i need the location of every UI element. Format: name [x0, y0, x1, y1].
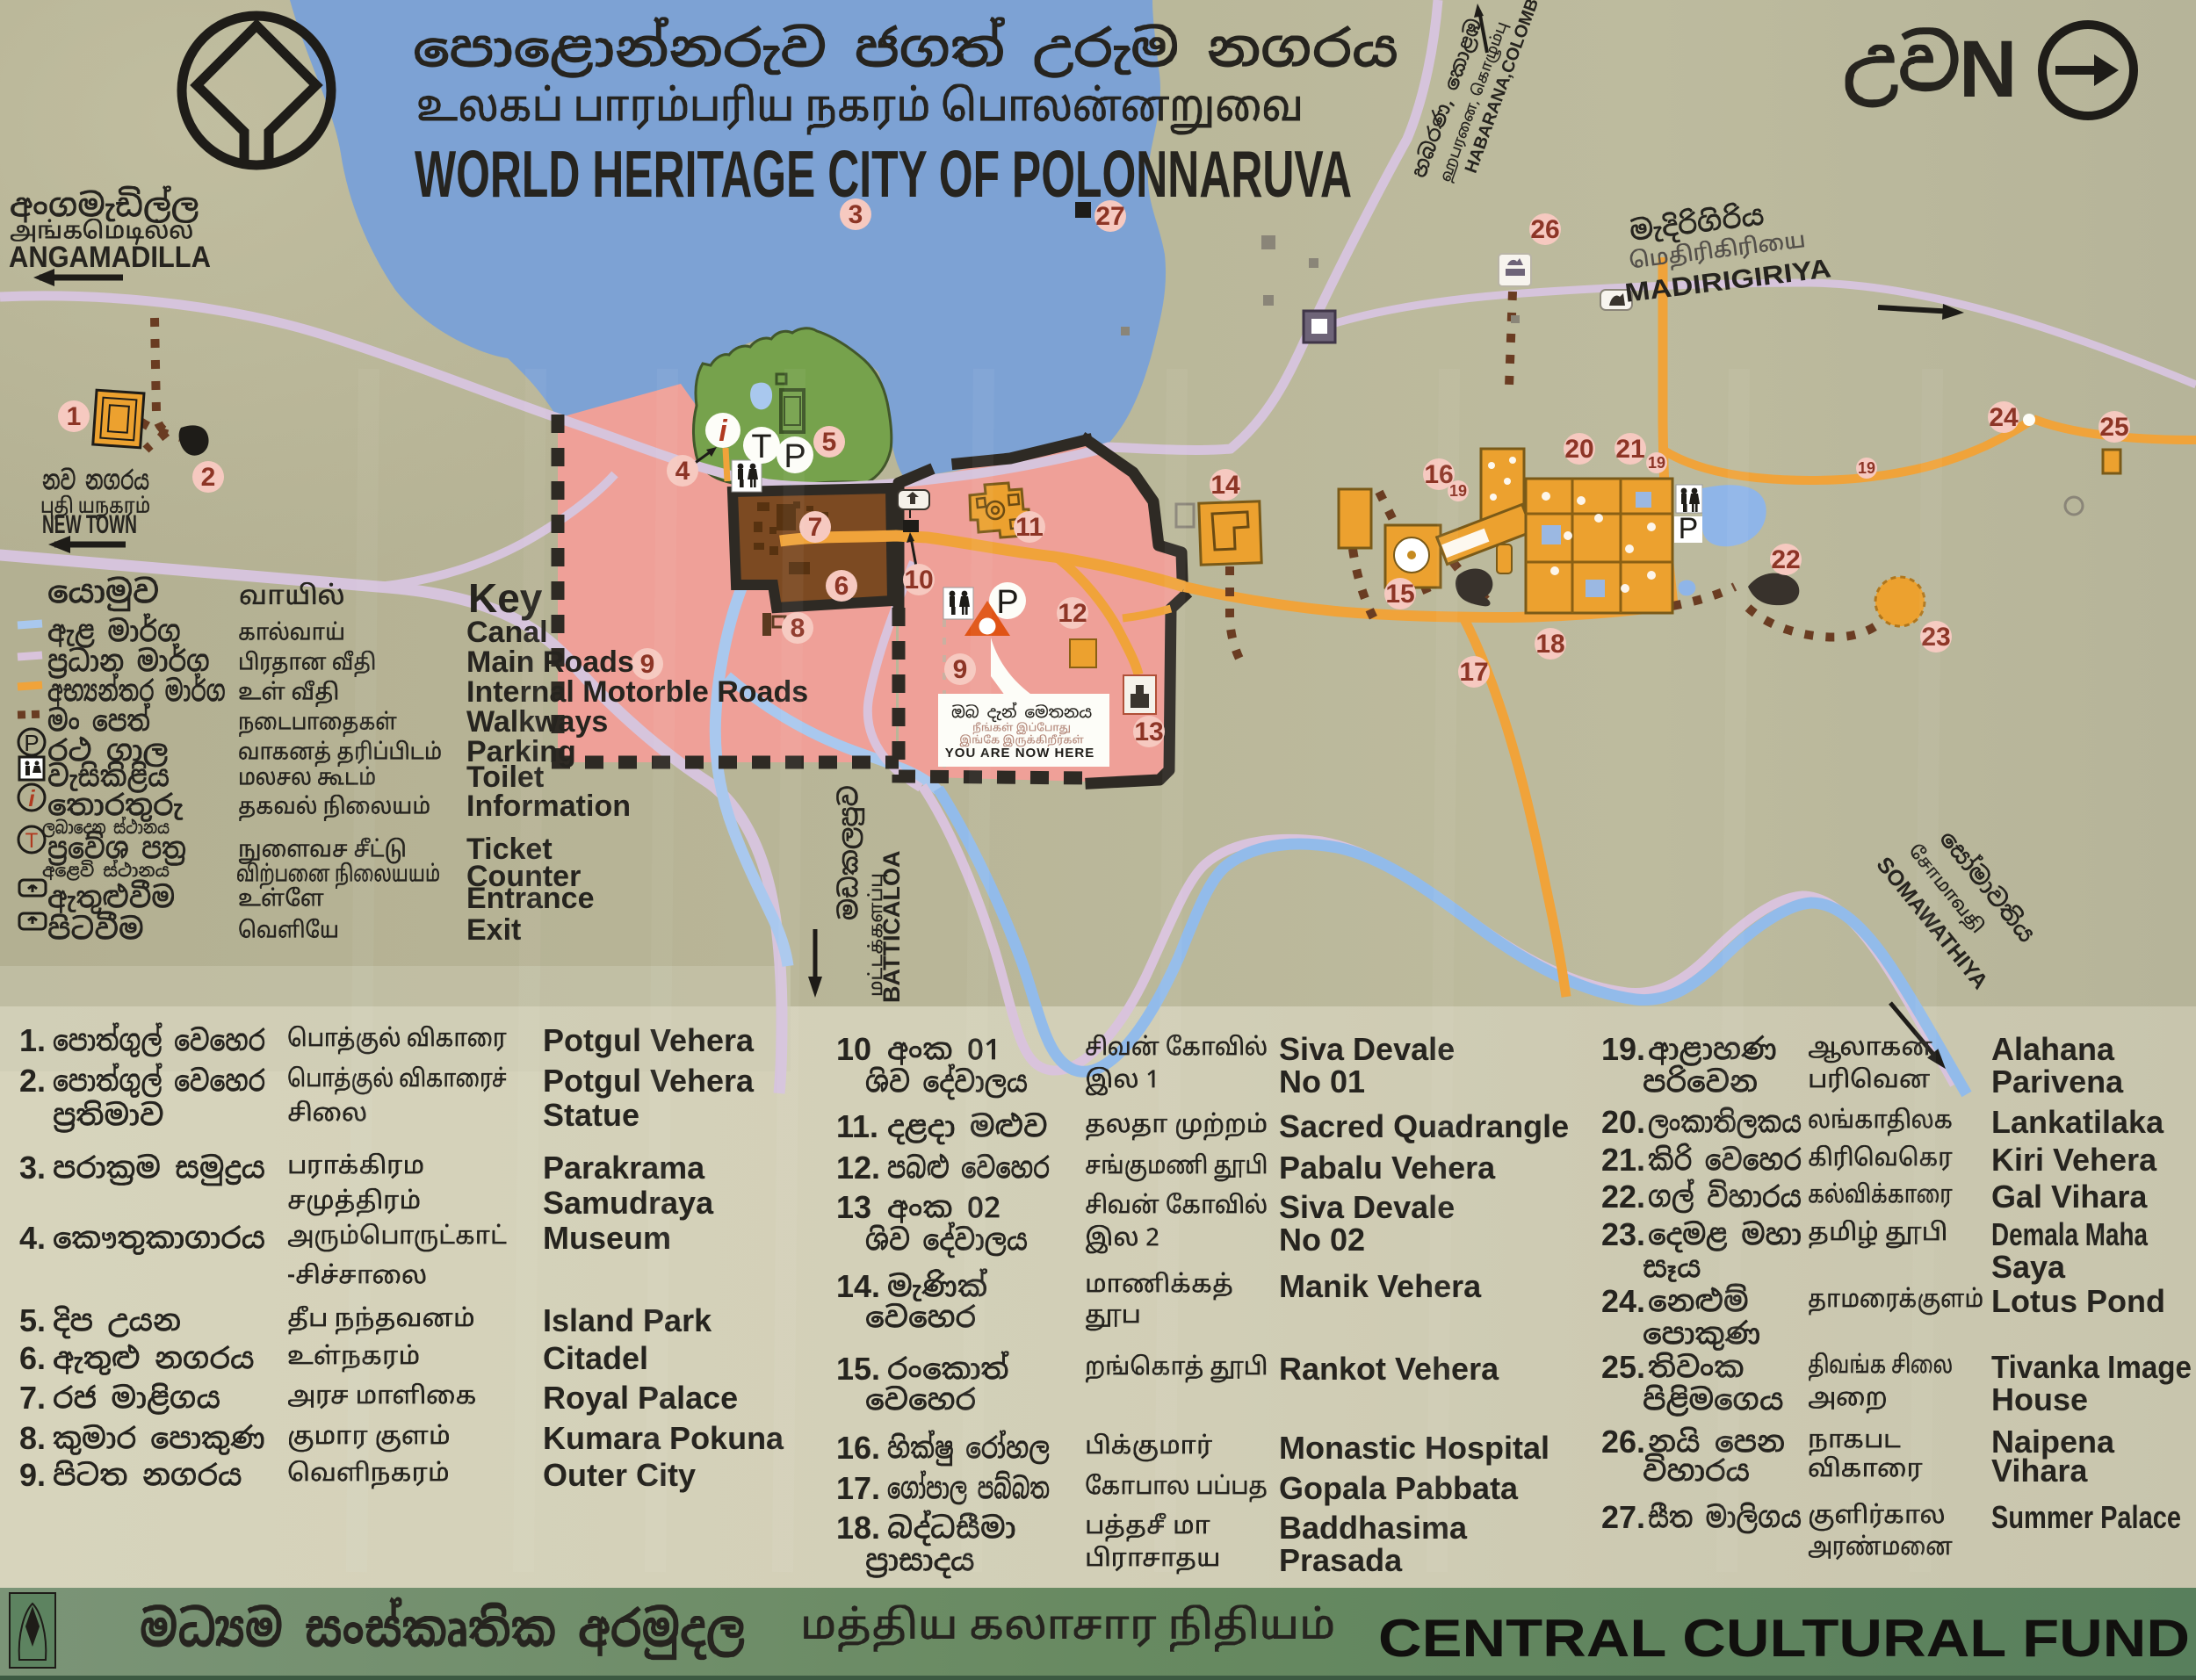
svg-text:i: i — [28, 785, 35, 811]
svg-text:Rankot Vehera: Rankot Vehera — [1279, 1351, 1499, 1387]
svg-text:4.: 4. — [19, 1220, 46, 1256]
svg-text:Potgul Vehera: Potgul Vehera — [543, 1022, 755, 1058]
svg-text:22: 22 — [1771, 545, 1800, 574]
svg-text:7.: 7. — [19, 1380, 46, 1416]
svg-text:Main Roads: Main Roads — [466, 645, 634, 679]
svg-text:NEW TOWN: NEW TOWN — [42, 510, 137, 539]
svg-text:Statue: Statue — [543, 1097, 639, 1133]
svg-text:21: 21 — [1615, 435, 1644, 464]
svg-text:12: 12 — [1058, 599, 1087, 628]
svg-text:20: 20 — [1564, 435, 1593, 464]
svg-text:House: House — [1991, 1381, 2088, 1417]
svg-text:CENTRAL CULTURAL FUND: CENTRAL CULTURAL FUND — [1378, 1609, 2190, 1668]
svg-text:Potgul Vehera: Potgul Vehera — [543, 1063, 755, 1099]
svg-text:Exit: Exit — [466, 913, 521, 947]
svg-text:3.: 3. — [19, 1150, 46, 1186]
svg-text:Island Park: Island Park — [543, 1302, 712, 1338]
svg-text:5.: 5. — [19, 1302, 46, 1338]
svg-text:8.: 8. — [19, 1420, 46, 1456]
svg-text:4: 4 — [675, 457, 690, 486]
svg-text:14.: 14. — [836, 1268, 880, 1304]
svg-text:18: 18 — [1535, 630, 1564, 659]
svg-text:5: 5 — [822, 428, 837, 457]
svg-text:No 02: No 02 — [1279, 1222, 1365, 1258]
svg-text:Prasada: Prasada — [1279, 1542, 1403, 1578]
svg-text:Manik Vehera: Manik Vehera — [1279, 1268, 1482, 1304]
svg-text:Information: Information — [466, 790, 631, 823]
svg-text:Kiri Vehera: Kiri Vehera — [1991, 1142, 2157, 1178]
svg-text:ANGAMADILLA: ANGAMADILLA — [9, 241, 211, 274]
svg-text:Monastic Hospital: Monastic Hospital — [1279, 1430, 1549, 1466]
svg-text:Outer City: Outer City — [543, 1457, 696, 1493]
svg-text:2.: 2. — [19, 1063, 46, 1099]
svg-text:P: P — [24, 730, 39, 756]
svg-text:No 01: No 01 — [1279, 1064, 1365, 1100]
svg-text:17: 17 — [1459, 658, 1488, 687]
svg-text:Parivena: Parivena — [1991, 1064, 2124, 1100]
svg-text:6: 6 — [834, 572, 849, 601]
svg-text:Royal Palace: Royal Palace — [543, 1380, 738, 1416]
svg-text:Gopala Pabbata: Gopala Pabbata — [1279, 1470, 1519, 1506]
svg-text:Samudraya: Samudraya — [543, 1185, 714, 1221]
svg-text:Lotus Pond: Lotus Pond — [1991, 1283, 2165, 1319]
svg-text:2: 2 — [201, 463, 216, 492]
svg-text:Demala Maha: Demala Maha — [1991, 1216, 2149, 1252]
svg-text:18.: 18. — [836, 1510, 880, 1546]
svg-text:Citadel: Citadel — [543, 1340, 648, 1376]
svg-text:BATTICALOA: BATTICALOA — [878, 851, 905, 1003]
svg-text:P: P — [1679, 512, 1699, 545]
svg-text:17.: 17. — [836, 1470, 880, 1506]
svg-text:7: 7 — [808, 513, 823, 542]
svg-text:Pabalu Vehera: Pabalu Vehera — [1279, 1150, 1496, 1186]
svg-text:24.: 24. — [1601, 1283, 1645, 1319]
svg-text:24: 24 — [1989, 403, 2019, 432]
svg-text:11: 11 — [1015, 513, 1044, 542]
svg-text:Gal Vihara: Gal Vihara — [1991, 1179, 2148, 1215]
svg-text:15.: 15. — [836, 1351, 880, 1387]
svg-text:6.: 6. — [19, 1340, 46, 1376]
svg-text:9: 9 — [953, 655, 968, 684]
svg-text:Parakrama: Parakrama — [543, 1150, 705, 1186]
svg-text:14: 14 — [1210, 471, 1240, 500]
svg-text:Siva Devale: Siva Devale — [1279, 1189, 1455, 1225]
svg-text:26.: 26. — [1601, 1424, 1645, 1460]
svg-text:23.: 23. — [1601, 1216, 1645, 1252]
svg-text:P: P — [996, 584, 1018, 621]
svg-text:Internal Motorble Roads: Internal Motorble Roads — [466, 675, 808, 709]
svg-text:25: 25 — [2099, 413, 2128, 442]
svg-text:15: 15 — [1385, 580, 1414, 609]
svg-text:WORLD HERITAGE CITY OF POLONNA: WORLD HERITAGE CITY OF POLONNARUVA — [415, 137, 1352, 211]
svg-text:13: 13 — [836, 1189, 871, 1225]
svg-text:T: T — [25, 829, 39, 853]
svg-text:1: 1 — [67, 402, 82, 431]
svg-text:Lankatilaka: Lankatilaka — [1991, 1104, 2164, 1140]
svg-text:25.: 25. — [1601, 1349, 1645, 1385]
svg-text:N: N — [1959, 25, 2017, 114]
svg-text:10: 10 — [836, 1031, 871, 1067]
svg-text:Siva Devale: Siva Devale — [1279, 1031, 1455, 1067]
svg-text:13: 13 — [1134, 717, 1163, 746]
svg-text:19.: 19. — [1601, 1031, 1645, 1067]
svg-text:16.: 16. — [836, 1430, 880, 1466]
svg-text:Vihara: Vihara — [1991, 1453, 2088, 1489]
svg-text:12.: 12. — [836, 1150, 880, 1186]
svg-text:19: 19 — [1648, 454, 1665, 472]
svg-text:Summer Palace: Summer Palace — [1991, 1499, 2181, 1535]
svg-text:YOU ARE NOW HERE: YOU ARE NOW HERE — [945, 746, 1094, 761]
svg-text:22.: 22. — [1601, 1179, 1645, 1215]
svg-text:27.: 27. — [1601, 1499, 1645, 1535]
svg-text:26: 26 — [1530, 215, 1559, 244]
svg-text:Alahana: Alahana — [1991, 1031, 2115, 1067]
svg-text:T: T — [751, 429, 771, 465]
svg-text:21.: 21. — [1601, 1142, 1645, 1178]
svg-text:Sacred Quadrangle: Sacred Quadrangle — [1279, 1108, 1569, 1144]
svg-text:11.: 11. — [836, 1108, 878, 1144]
svg-text:20.: 20. — [1601, 1104, 1645, 1140]
svg-text:9.: 9. — [19, 1457, 46, 1493]
svg-text:Saya: Saya — [1991, 1249, 2066, 1285]
svg-text:10: 10 — [904, 566, 933, 595]
svg-text:1.: 1. — [19, 1022, 46, 1058]
svg-text:Tivanka Image: Tivanka Image — [1991, 1349, 2192, 1385]
svg-text:19: 19 — [1858, 459, 1875, 477]
svg-text:i: i — [719, 415, 728, 448]
